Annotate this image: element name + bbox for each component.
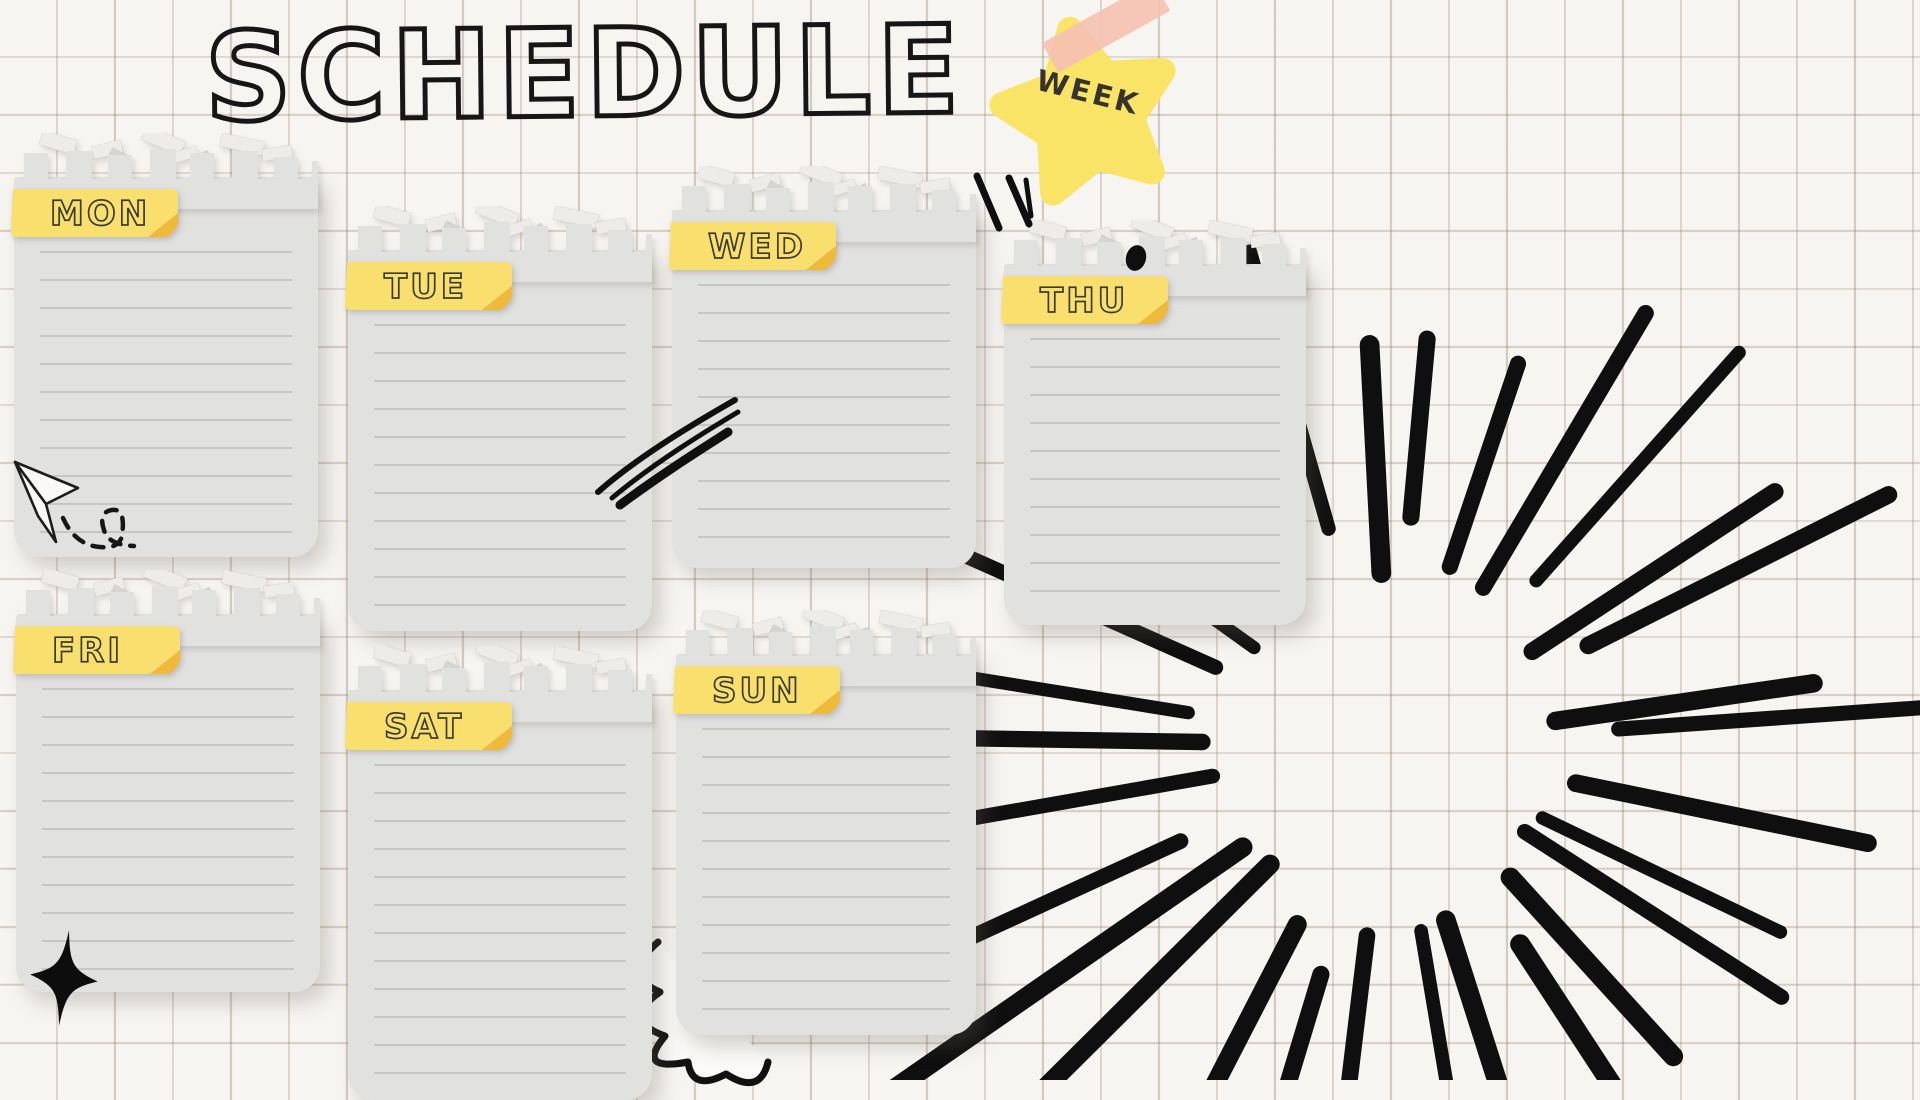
day-card-thu: THU [1004, 220, 1306, 625]
day-card-sat: SAT [348, 646, 652, 1100]
day-card-fri: FRI [16, 570, 320, 992]
day-card-wed: WED [672, 166, 976, 568]
day-label-tag: MON [8, 187, 184, 239]
day-label: FRI [52, 631, 123, 671]
ruled-lines [42, 662, 294, 976]
ruled-lines [374, 298, 626, 615]
day-card-mon: MON [14, 133, 318, 557]
day-label-tag: SAT [342, 700, 518, 752]
day-label-tag: WED [666, 220, 842, 272]
ruled-lines [374, 738, 626, 1084]
day-label-tag: FRI [10, 624, 186, 676]
day-card-tue: TUE [348, 206, 652, 631]
day-label: THU [1040, 281, 1128, 321]
day-label: WED [708, 227, 806, 267]
day-label: SUN [712, 671, 802, 711]
page-title: SCHEDULE [204, 2, 965, 149]
ruled-lines [698, 258, 950, 552]
day-label: TUE [384, 267, 467, 307]
ruled-lines [40, 225, 292, 541]
day-label: SAT [384, 707, 464, 747]
day-card-sun: SUN [676, 610, 976, 1035]
day-label: MON [50, 194, 150, 234]
day-label-tag: TUE [342, 260, 518, 312]
schedule-template-canvas: { "title": "SCHEDULE", "week_badge": { "… [0, 0, 1920, 1080]
day-label-tag: THU [998, 274, 1174, 326]
ruled-lines [702, 702, 950, 1019]
ruled-lines [1030, 312, 1280, 609]
page-title-wrap: SCHEDULE [175, 2, 995, 152]
day-label-tag: SUN [670, 664, 846, 716]
